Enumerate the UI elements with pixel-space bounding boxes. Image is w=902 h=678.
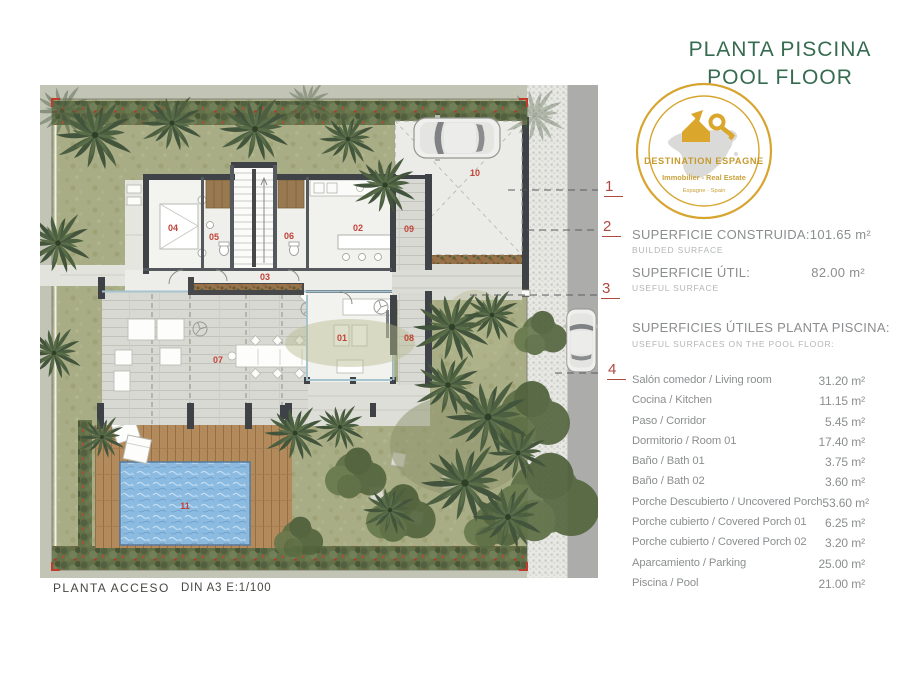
boundary-wall [522,117,529,297]
built-surface-row: SUPERFICIE CONSTRUIDA: 101.65 m² [632,227,865,242]
surface-row-value: 3.20 m² [825,536,865,550]
surface-row: Aparcamiento / Parking 25.00 m² [632,557,865,577]
surfaces-section-title: SUPERFICIES ÚTILES PLANTA PISCINA: [632,320,865,335]
built-surface-sublabel: BUILDED SURFACE [632,245,723,255]
surface-row-label: Paso / Corridor [632,415,706,427]
useful-surface-row: SUPERFICIE ÚTIL: 82.00 m² [632,265,865,280]
room-number-09: 09 [404,224,414,234]
surface-row-label: Baño / Bath 01 [632,455,705,467]
surface-row-value: 31.20 m² [818,374,865,388]
surface-row-label: Baño / Bath 02 [632,475,705,487]
kitchen-island [338,235,392,249]
surface-row: Baño / Bath 02 3.60 m² [632,475,865,495]
surface-row: Porche Descubierto / Uncovered Porch 53.… [632,496,865,516]
surface-row-label: Dormitorio / Room 01 [632,435,736,447]
floor-plan: 04 05 06 02 09 03 07 01 08 10 11 [40,85,598,578]
room-number-01: 01 [337,333,347,343]
surface-row: Dormitorio / Room 01 17.40 m² [632,435,865,455]
legend-marker-1: 1 [604,179,623,197]
logo-subline-text: Espagne - Spain [683,188,726,194]
surface-row-value: 3.60 m² [825,475,865,489]
surface-row: Piscina / Pool 21.00 m² [632,577,865,597]
surfaces-section-subtitle: USEFUL SURFACES ON THE POOL FLOOR: [632,339,835,349]
useful-surface-sublabel: USEFUL SURFACE [632,283,719,293]
page: 04 05 06 02 09 03 07 01 08 10 11 PLANTA … [0,0,902,678]
surface-row-value: 53.60 m² [822,496,869,510]
brand-logo: DESTINATION ESPAGNE Immobilier - Real Es… [633,80,775,222]
legend-marker-4: 4 [607,362,626,380]
surface-row-label: Aparcamiento / Parking [632,557,746,569]
surface-row: Porche cubierto / Covered Porch 02 3.20 … [632,536,865,556]
logo-tagline-text: Immobilier - Real Estate [662,173,746,182]
room-number-03: 03 [260,272,270,282]
logo-brand-text: DESTINATION ESPAGNE [644,156,764,166]
title-line-spanish: PLANTA PISCINA [640,36,902,64]
surface-row-value: 3.75 m² [825,455,865,469]
room-number-07: 07 [213,355,223,365]
surface-row-value: 21.00 m² [818,577,865,591]
legend-marker-3: 3 [601,281,620,299]
surface-row-label: Porche cubierto / Covered Porch 02 [632,536,806,548]
surface-row-value: 5.45 m² [825,415,865,429]
room-number-10: 10 [470,168,480,178]
useful-surface-value: 82.00 m² [811,265,865,280]
surface-row-value: 6.25 m² [825,516,865,530]
room-number-08: 08 [404,333,414,343]
surface-row-value: 25.00 m² [818,557,865,571]
car-parked-icon [414,115,500,161]
room-number-04: 04 [168,223,178,233]
surface-row: Porche cubierto / Covered Porch 01 6.25 … [632,516,865,536]
room-number-06: 06 [284,231,294,241]
pool-deck [95,414,292,548]
car-road-icon [565,309,598,372]
footer-plan-name: PLANTA ACCESO [53,581,170,595]
room-number-05: 05 [209,232,219,242]
surface-row: Salón comedor / Living room 31.20 m² [632,374,865,394]
surface-row-value: 17.40 m² [818,435,865,449]
room-number-02: 02 [353,223,363,233]
surfaces-section-title-text: SUPERFICIES ÚTILES PLANTA PISCINA: [632,320,890,335]
surface-row-label: Piscina / Pool [632,577,698,589]
sun-lounger-icon [123,435,151,463]
surface-row-label: Cocina / Kitchen [632,394,712,406]
surface-row-value: 11.15 m² [819,394,865,408]
floor-plan-svg: 04 05 06 02 09 03 07 01 08 10 11 [40,85,598,578]
built-surface-value: 101.65 m² [810,227,871,242]
surface-row: Paso / Corridor 5.45 m² [632,415,865,435]
surface-row: Cocina / Kitchen 11.15 m² [632,394,865,414]
useful-surface-label: SUPERFICIE ÚTIL: [632,265,750,280]
surface-row-label: Salón comedor / Living room [632,374,772,386]
built-surface-label: SUPERFICIE CONSTRUIDA: [632,227,810,242]
surface-row-label: Porche cubierto / Covered Porch 01 [632,516,806,528]
surface-rows: Salón comedor / Living room 31.20 m² Coc… [632,374,865,597]
brand-logo-svg: DESTINATION ESPAGNE Immobilier - Real Es… [633,80,775,222]
surface-row-label: Porche Descubierto / Uncovered Porch [632,496,822,508]
footer-scale: DIN A3 E:1/100 [181,582,271,594]
legend-marker-2: 2 [602,219,621,237]
room-number-11: 11 [180,501,190,511]
surface-row: Baño / Bath 01 3.75 m² [632,455,865,475]
